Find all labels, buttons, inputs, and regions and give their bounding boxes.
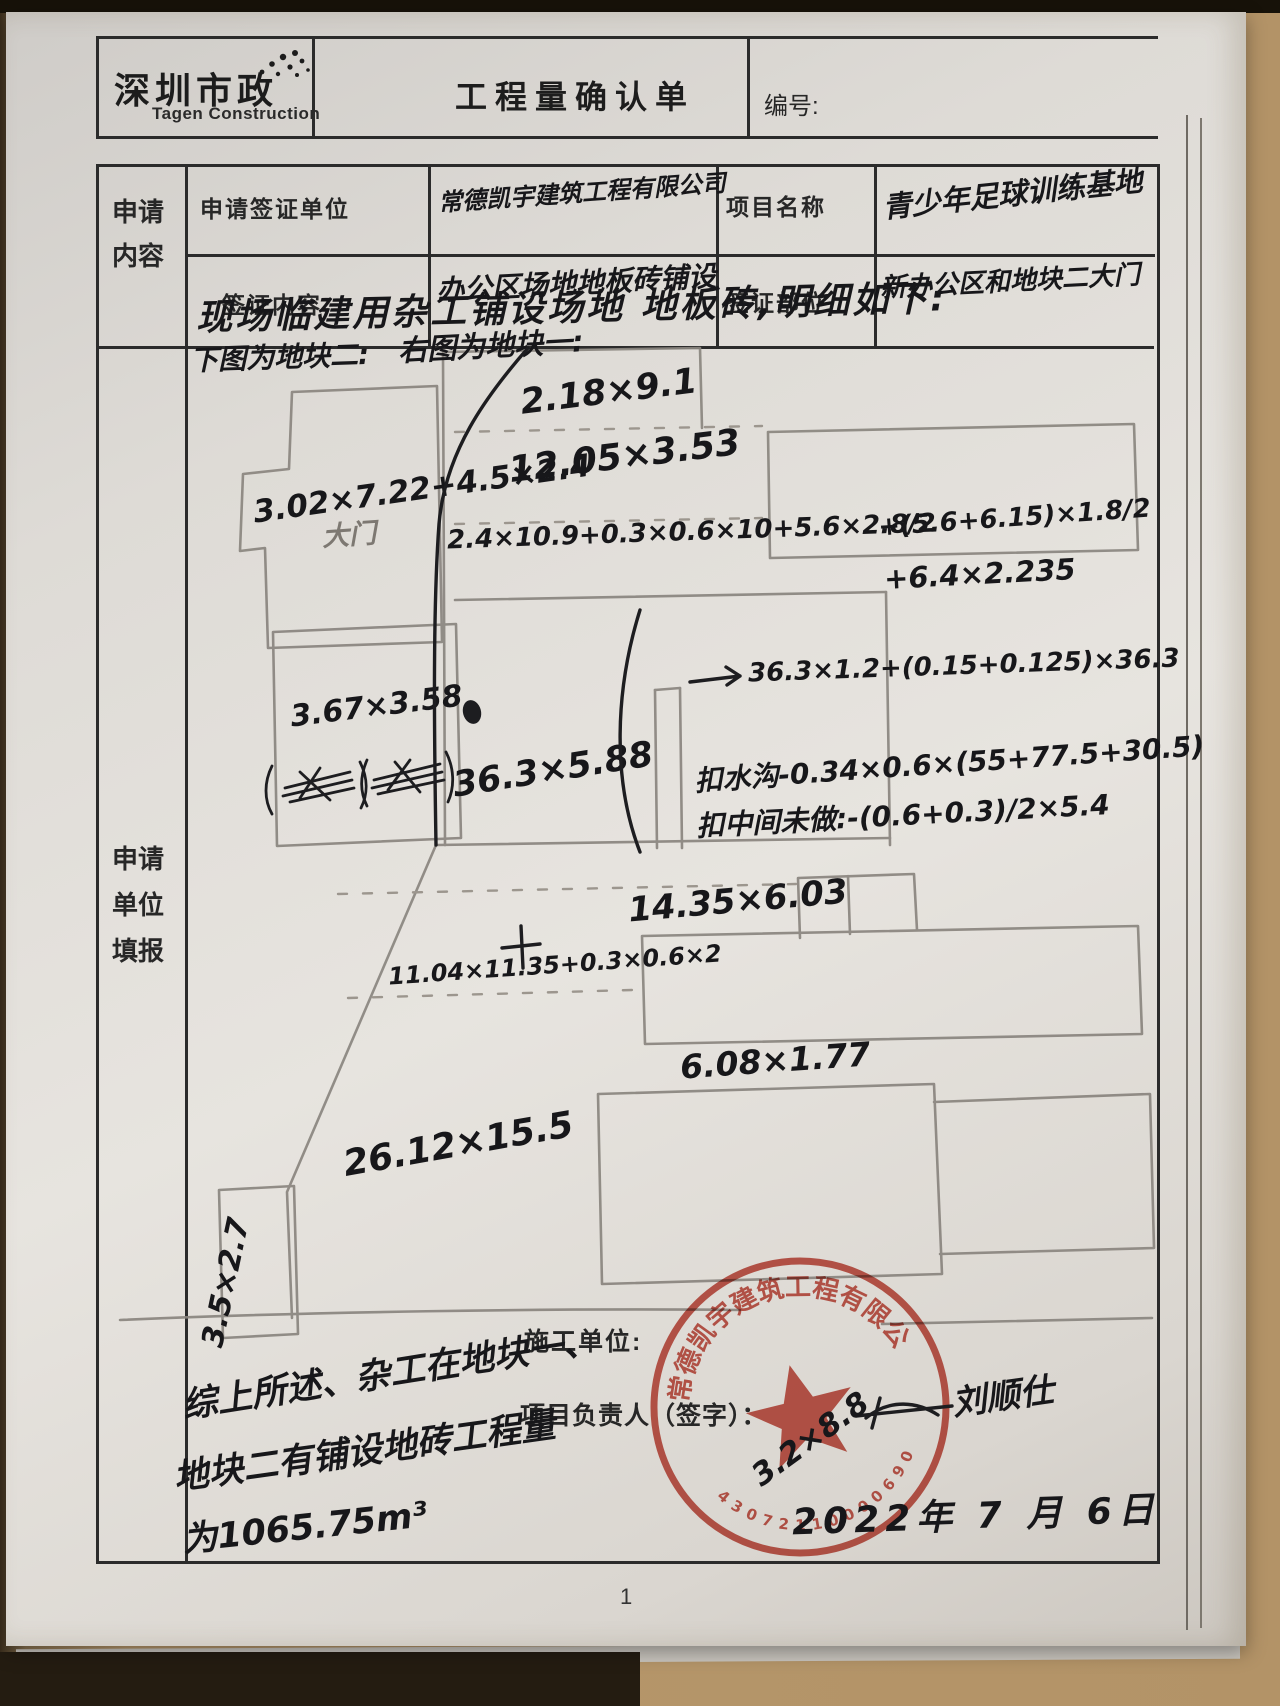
ink-strokes-layer [0, 0, 1280, 1706]
ink-blot [460, 698, 484, 726]
page-number: 1 [620, 1584, 632, 1610]
photo-of-form: 深圳市政 Tagen Construction 工程量确认单 编号: 申请内容 … [0, 0, 1280, 1706]
